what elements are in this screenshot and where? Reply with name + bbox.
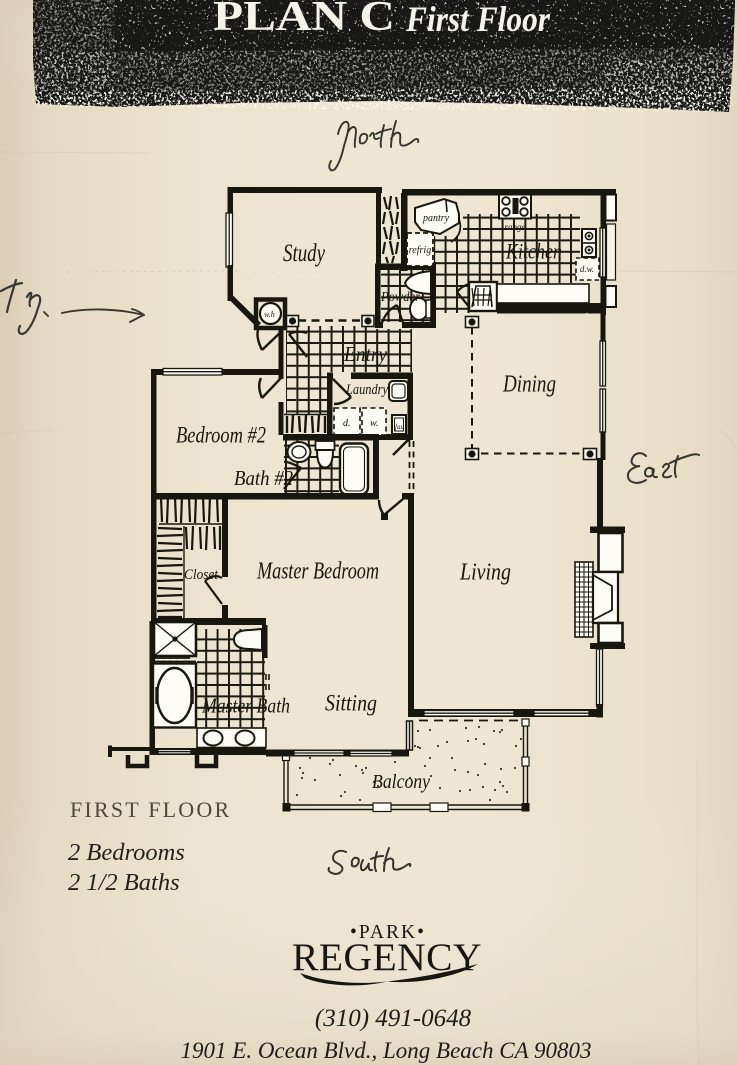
svg-text:1901 E. Ocean Blvd., Long Beac: 1901 E. Ocean Blvd., Long Beach CA 90803	[181, 1038, 592, 1063]
svg-text:Bedroom #2: Bedroom #2	[176, 423, 266, 448]
svg-text:Master Bedroom: Master Bedroom	[256, 559, 379, 585]
svg-text:Kitchen: Kitchen	[505, 239, 562, 264]
svg-text:w.h: w.h	[264, 310, 275, 319]
svg-text:Laundry: Laundry	[345, 382, 388, 398]
svg-text:Master Bath: Master Bath	[201, 694, 290, 718]
svg-text:2 1/2 Baths: 2 1/2 Baths	[68, 869, 180, 896]
svg-text:pantry: pantry	[422, 213, 450, 224]
svg-text:FIRST FLOOR: FIRST FLOOR	[70, 797, 231, 822]
svg-text:PLAN C: PLAN C	[213, 0, 395, 40]
svg-text:range: range	[505, 222, 526, 232]
svg-text:Bath #2: Bath #2	[234, 466, 293, 490]
svg-text:Entry: Entry	[343, 342, 388, 366]
svg-text:(310) 491-0648: (310) 491-0648	[315, 1005, 472, 1032]
svg-text:Study: Study	[283, 240, 326, 267]
svg-text:w.: w.	[370, 418, 378, 429]
svg-text:fau: fau	[395, 423, 404, 431]
svg-text:refrig: refrig	[409, 245, 431, 256]
svg-text:Closet: Closet	[184, 567, 219, 583]
svg-text:d.w.: d.w.	[580, 264, 594, 274]
svg-text:Living: Living	[459, 560, 511, 586]
svg-text:Balcony: Balcony	[372, 771, 430, 793]
svg-text:Dining: Dining	[502, 372, 556, 398]
svg-text:2 Bedrooms: 2 Bedrooms	[68, 839, 185, 866]
svg-text:Sitting: Sitting	[325, 691, 377, 716]
svg-text:Powder: Powder	[380, 290, 420, 305]
svg-text:d.: d.	[343, 418, 351, 429]
svg-text:First Floor: First Floor	[405, 0, 551, 39]
